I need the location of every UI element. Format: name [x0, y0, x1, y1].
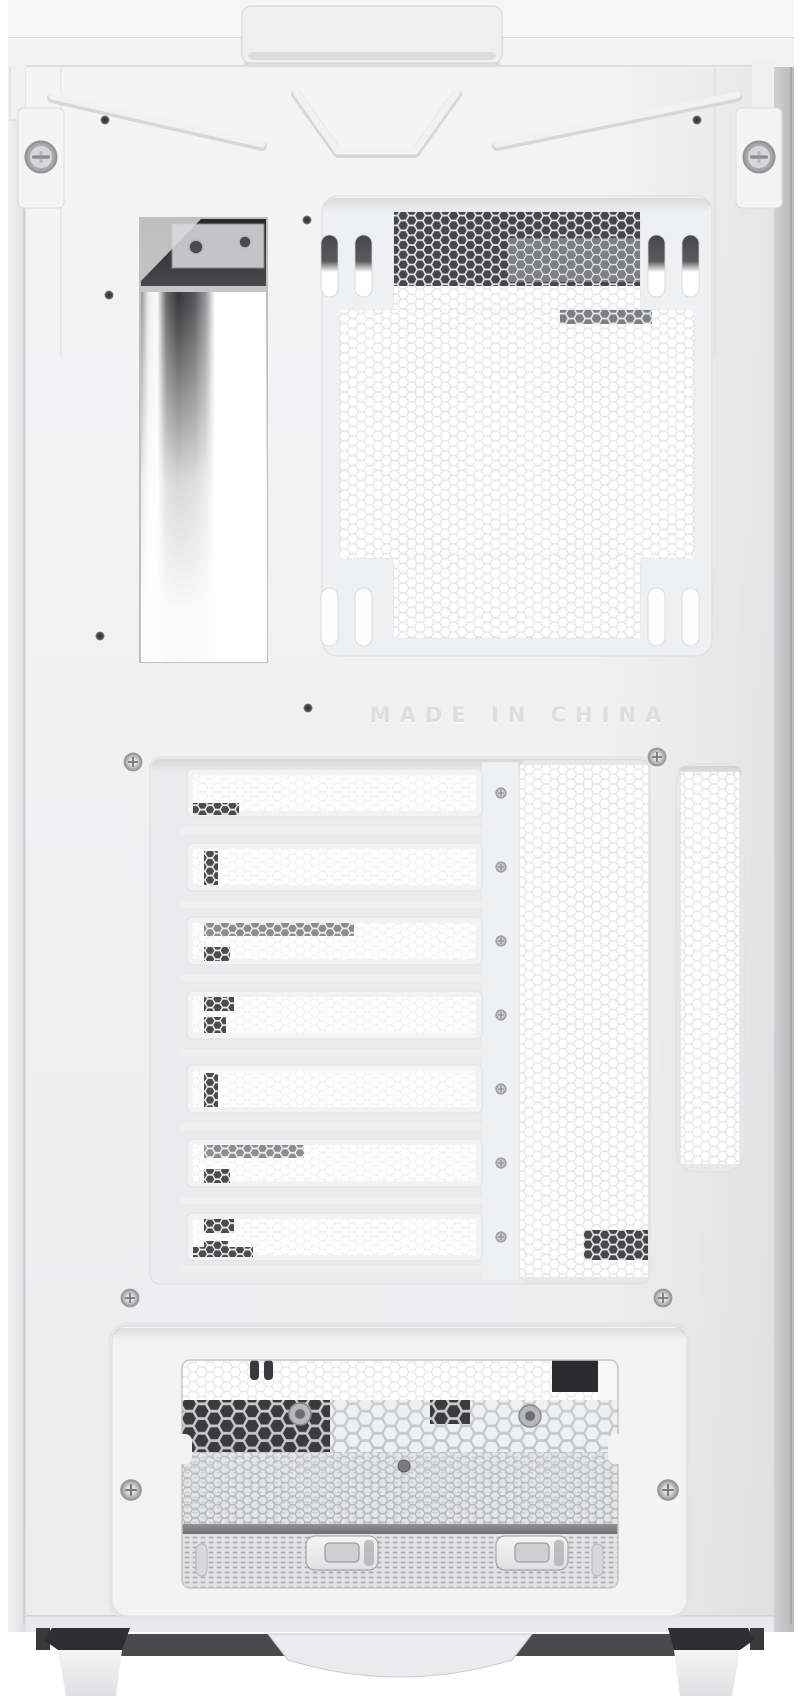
- psu-bay: [108, 1322, 691, 1620]
- psu-side-tab: [608, 1434, 624, 1464]
- screw-hole-icon: [693, 116, 702, 125]
- fan-mount-slot: [682, 588, 699, 646]
- io-shield-cutout: [140, 218, 267, 662]
- fan-mount-slot: [355, 588, 372, 646]
- screw-hole-icon: [96, 632, 105, 641]
- panel-screw-icon: [121, 1289, 139, 1307]
- pci-slot-cover: [187, 1213, 482, 1261]
- case-top: [8, 0, 794, 72]
- thumbscrew-icon: [25, 141, 57, 173]
- psu-standoff-pad: [306, 1536, 378, 1570]
- panel-screw-icon: [654, 1289, 672, 1307]
- fan-mount-slot: [648, 235, 665, 297]
- fan-mount-slot: [355, 235, 372, 297]
- panel-screw-icon: [124, 753, 142, 771]
- exhaust-fan-area: [321, 196, 712, 656]
- case-rear-illustration: MADE IN CHINA MADE IN CHINA: [0, 0, 800, 1697]
- fan-mount-slot: [321, 588, 338, 646]
- screw-hole-icon: [303, 216, 312, 225]
- thumbscrew-left: [18, 108, 64, 208]
- screw-hole-icon: [304, 704, 313, 713]
- thumbscrew-icon: [743, 141, 775, 173]
- screw-hole-icon: [105, 291, 114, 300]
- pci-slot-covers: [187, 769, 482, 1261]
- panel-screw-icon: [648, 748, 666, 766]
- vent-strip-narrow: [676, 764, 744, 1172]
- io-bracket-screw-icon: [189, 240, 203, 254]
- fan-grille-hex-mesh: [340, 310, 694, 558]
- embossed-text: MADE IN CHINA: [370, 703, 671, 727]
- vent-strip-dark-hexes: [584, 1230, 648, 1260]
- interior-dark-notch: [552, 1360, 598, 1392]
- psu-standoff-pad: [496, 1536, 568, 1570]
- fan-mount-slot: [648, 588, 665, 646]
- psu-opening-interior: [182, 1356, 618, 1588]
- expansion-slot-area: [150, 757, 650, 1284]
- screw-hole-icon: [101, 116, 110, 125]
- pci-slot-cover: [187, 769, 482, 817]
- fan-mount-slot: [682, 235, 699, 297]
- fan-hub-behind-grille: [508, 238, 640, 282]
- vent-strip-wide: [520, 760, 648, 1282]
- pci-slot-cover: [187, 1139, 482, 1187]
- pci-slot-cover: [187, 1065, 482, 1113]
- pci-slot-cover: [187, 991, 482, 1039]
- embossed-origin-text: MADE IN CHINA MADE IN CHINA: [370, 703, 671, 728]
- interior-screw-icon: [398, 1460, 410, 1472]
- side-panel-left-edge: [8, 0, 28, 1632]
- io-bracket-screw-icon: [239, 236, 251, 248]
- psu-plate-screw-icon: [658, 1480, 679, 1501]
- product-photo-pc-case-rear: MADE IN CHINA MADE IN CHINA: [0, 0, 800, 1697]
- panel-crease: [26, 65, 774, 67]
- side-panel-right-edge: [772, 0, 794, 1632]
- psu-plate-screw-icon: [121, 1480, 142, 1501]
- psu-side-tab: [176, 1434, 192, 1464]
- pci-slot-cover: [187, 917, 482, 965]
- pci-slot-cover: [187, 843, 482, 891]
- fan-mount-slot: [321, 235, 338, 297]
